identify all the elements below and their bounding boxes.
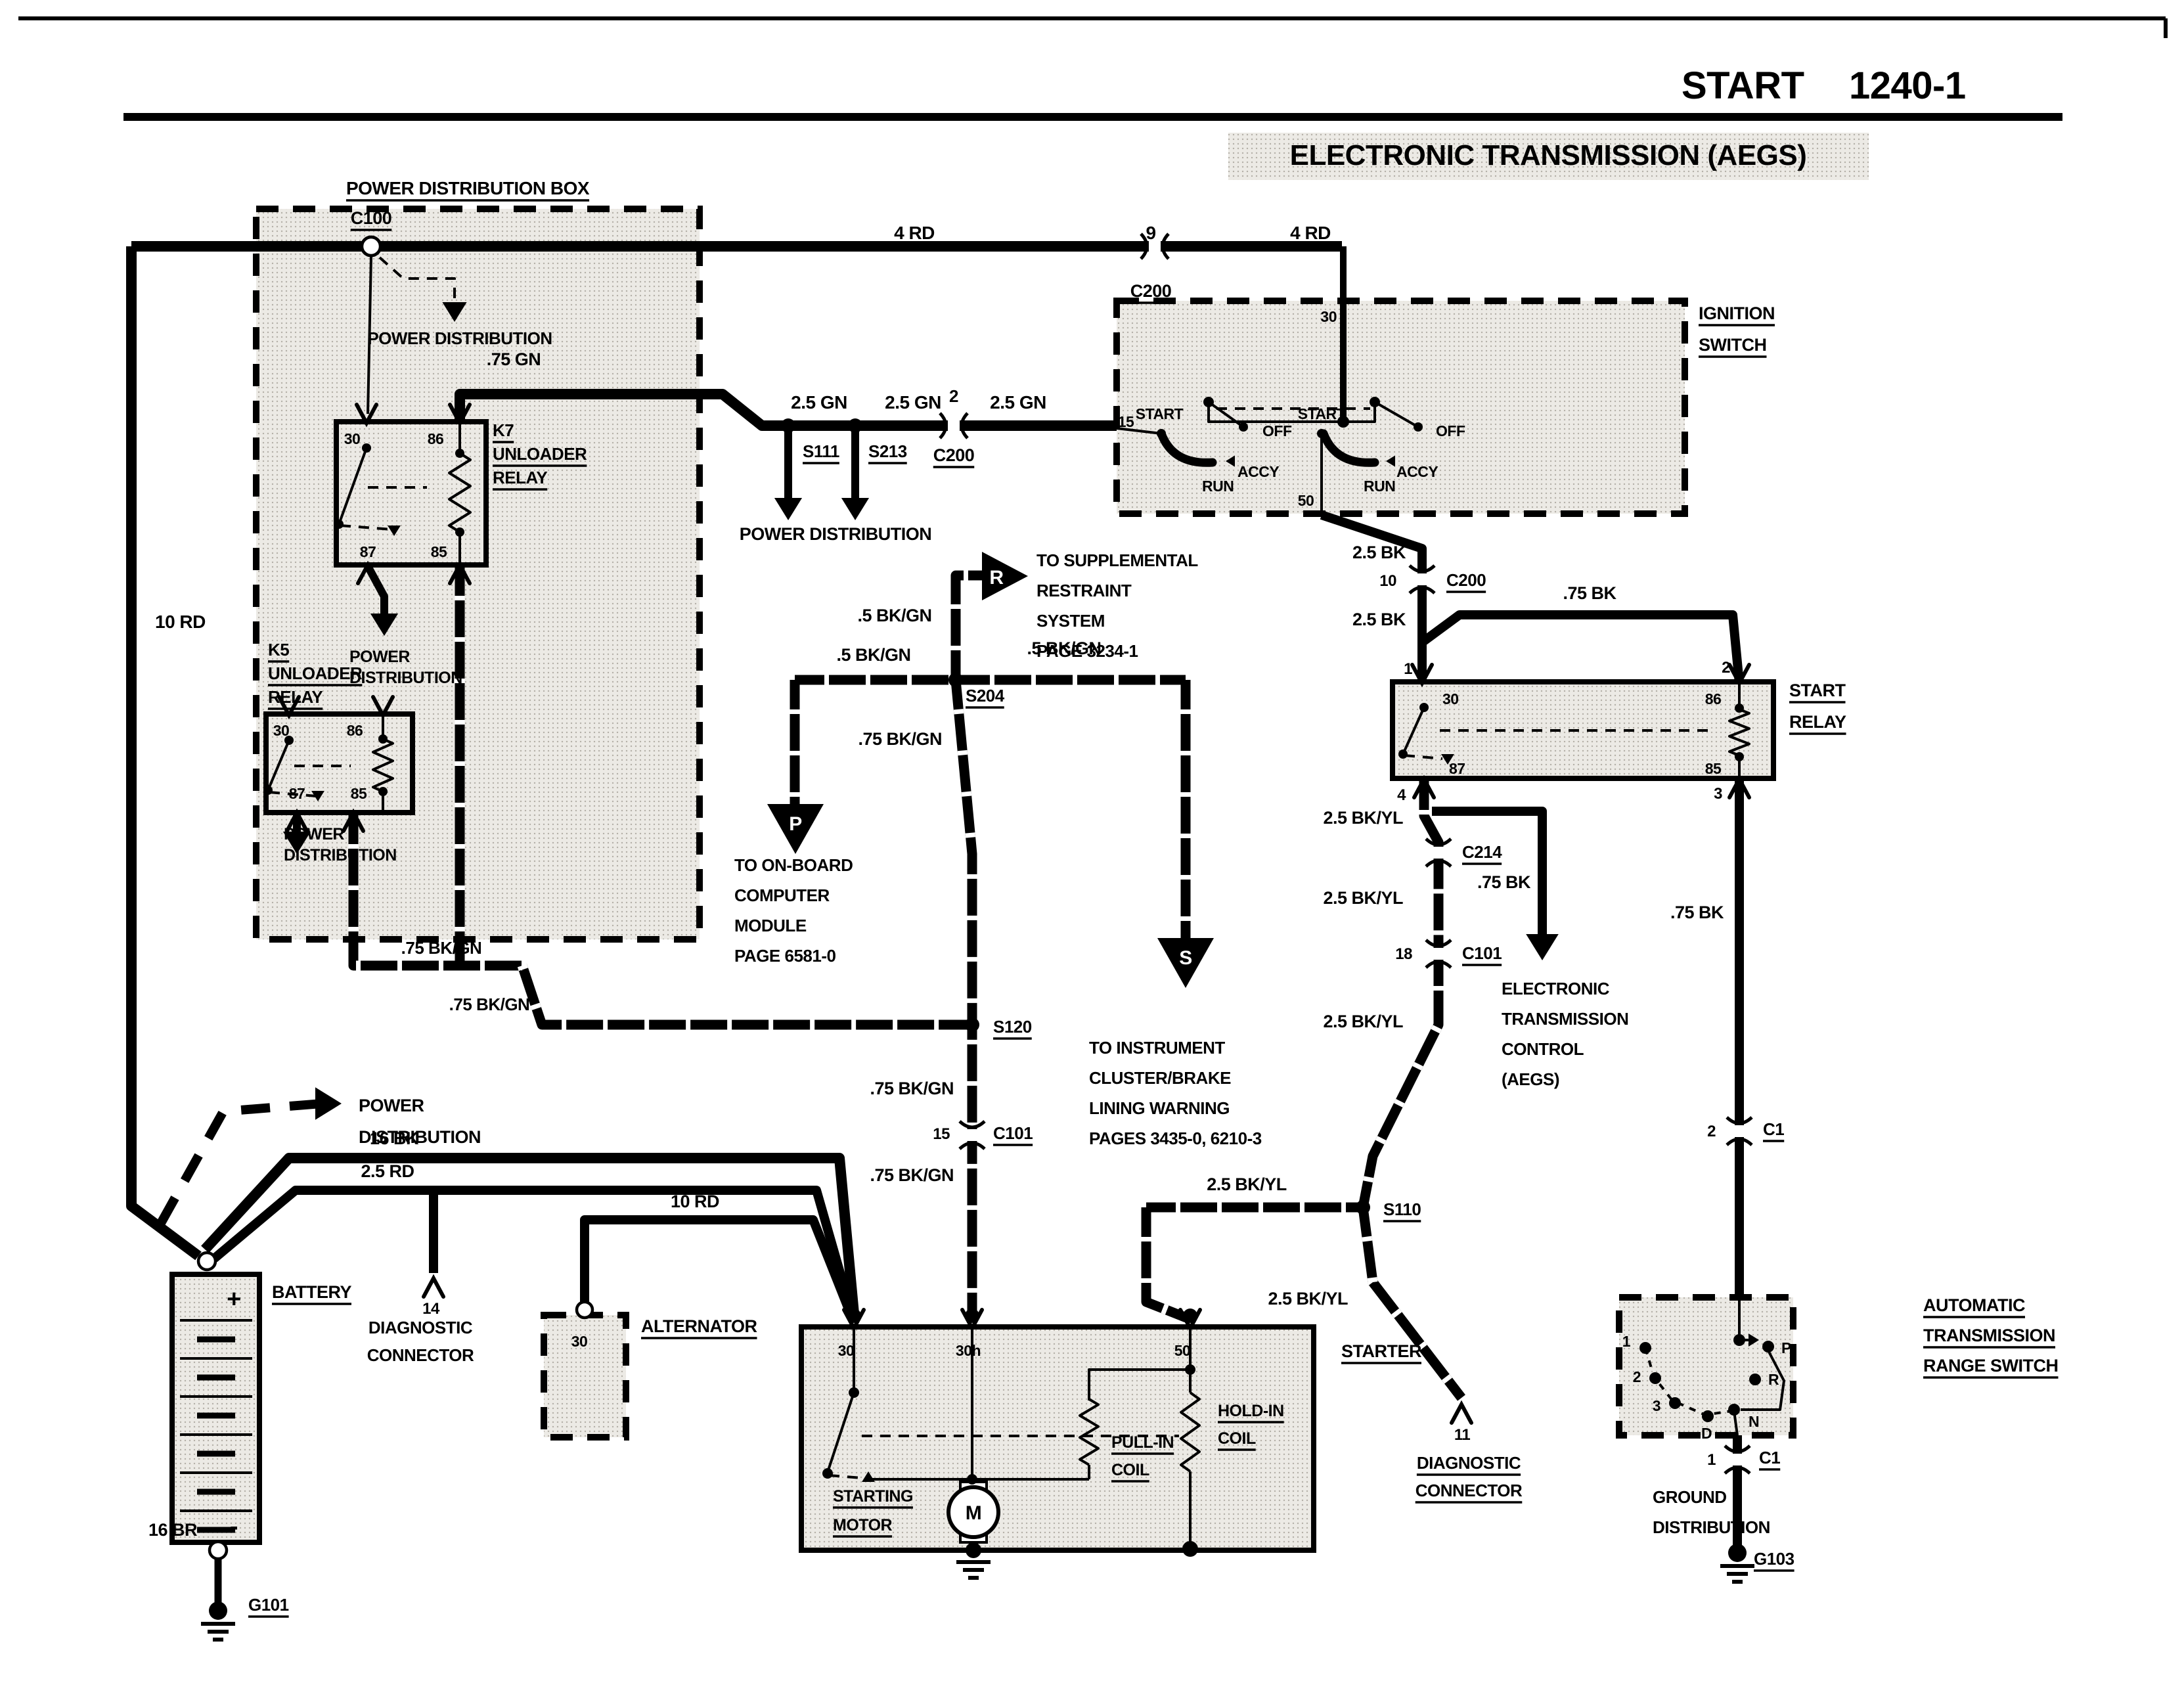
nav-arrow-letter-r: R — [989, 567, 1004, 589]
ign-off-left: OFF — [1262, 422, 1292, 439]
ign-accy-left: ACCY — [1237, 463, 1279, 480]
k5-name-2: UNLOADER — [268, 663, 363, 683]
junction-dot — [849, 1387, 859, 1398]
wire-25gn-c: 2.5 GN — [990, 392, 1046, 413]
junction-dot — [378, 787, 388, 796]
wire-hatch — [1363, 956, 1438, 1207]
diag14-1: DIAGNOSTIC — [368, 1318, 473, 1337]
diag14-2: CONNECTOR — [367, 1345, 474, 1365]
wire-25bkyl-c: 2.5 BK/YL — [1323, 1012, 1403, 1031]
junction-dot — [948, 673, 963, 687]
k5-pin86: 86 — [347, 722, 363, 739]
ign-accy-right: ACCY — [1396, 463, 1438, 480]
nav-arrow-letter-s: S — [1179, 947, 1192, 969]
s-dest-4: PAGES 3435-0, 6210-3 — [1089, 1129, 1262, 1148]
terminal-ring — [577, 1302, 592, 1318]
k7-pin30: 30 — [344, 430, 361, 447]
junction-dot — [1728, 1544, 1747, 1562]
k7-pin87: 87 — [360, 543, 376, 560]
start-relay-name-1: START — [1789, 681, 1846, 700]
rs-r: R — [1768, 1371, 1779, 1388]
junction-dot — [847, 1309, 861, 1323]
wire-75bkgn-d: .75 BK/GN — [870, 1079, 954, 1098]
c101-15-label: C101 — [993, 1123, 1033, 1143]
p-dest-3: MODULE — [734, 916, 807, 935]
junction-dot — [781, 418, 795, 433]
wire-25bkyl-a: 2.5 BK/YL — [1323, 808, 1403, 828]
junction-dot — [965, 1018, 979, 1032]
pd-arrow-1: POWER — [359, 1096, 424, 1115]
relay-pin4: 4 — [1397, 786, 1406, 804]
etc-dest-2: TRANSMISSION — [1502, 1009, 1628, 1029]
k5-name: K5 — [268, 640, 289, 660]
c200-10-label: C200 — [1446, 570, 1486, 590]
junction-dot — [1762, 1341, 1774, 1353]
battery-plus: + — [227, 1286, 241, 1313]
p-dest-4: PAGE 6581-0 — [734, 946, 836, 966]
connector-gap — [1732, 1125, 1747, 1137]
junction-dot — [1702, 1410, 1714, 1422]
rs-p: P — [1781, 1339, 1791, 1356]
wire-hatch — [1363, 1207, 1461, 1398]
terminal-ring — [198, 1253, 215, 1270]
page-title: START — [1682, 64, 1804, 107]
k7-name: K7 — [493, 420, 514, 440]
ground-dist-2: DISTRIBUTION — [1653, 1517, 1770, 1537]
c101-18-pin: 18 — [1395, 945, 1412, 963]
c200-2-pin: 2 — [949, 386, 958, 406]
wire-hatch — [956, 575, 984, 680]
wire-10rd-b: 10 RD — [671, 1192, 719, 1211]
junction-dot — [1728, 1404, 1740, 1416]
junction-dot — [1733, 1334, 1745, 1346]
relay-86: 86 — [1705, 690, 1722, 707]
diag11-pin: 11 — [1454, 1426, 1471, 1444]
c200-9-label: C200 — [1130, 281, 1172, 301]
k5-pin85: 85 — [351, 785, 367, 802]
battery-box — [172, 1274, 259, 1542]
wiring-diagram-page: START 1240-1 ELECTRONIC TRANSMISSION (AE… — [0, 0, 2184, 1697]
pin-fork — [424, 1278, 443, 1297]
wire-4rd-a: 4 RD — [894, 223, 935, 243]
pullin-coil-1: PULL-IN — [1111, 1433, 1174, 1452]
connector-gap — [1431, 847, 1446, 859]
s120-label: S120 — [993, 1017, 1032, 1037]
arrowhead — [774, 498, 802, 520]
c214-label: C214 — [1462, 842, 1502, 862]
arrowhead — [315, 1087, 342, 1120]
junction-dot — [1317, 429, 1326, 438]
k5-pin30: 30 — [273, 722, 290, 739]
starter-pin30h: 30h — [956, 1342, 981, 1359]
ignition-name-2: SWITCH — [1699, 335, 1766, 355]
k5-pd-1: POWER — [284, 825, 344, 843]
wire-75bkgn-a: .75 BK/GN — [401, 938, 482, 958]
wire-thick — [585, 1220, 853, 1319]
terminal-ring — [362, 237, 380, 256]
wire-hatch-ticks — [1363, 1207, 1461, 1398]
s-dest-2: CLUSTER/BRAKE — [1089, 1068, 1231, 1088]
ign-off-right: OFF — [1436, 422, 1465, 439]
pullin-coil-2: COIL — [1111, 1461, 1149, 1479]
junction-dot — [209, 1601, 227, 1620]
pd-arrow-2: DISTRIBUTION — [359, 1127, 481, 1147]
wire-75bkgn-c: .75 BK/GN — [858, 729, 942, 749]
wire-5bkgn-up: .5 BK/GN — [857, 606, 931, 625]
pdb-title: POWER DISTRIBUTION BOX — [346, 178, 590, 198]
rs-1: 1 — [1622, 1333, 1631, 1350]
junction-dot — [1414, 422, 1423, 432]
nav-arrow-letter-p: P — [789, 813, 802, 835]
wire-25gn-b: 2.5 GN — [885, 392, 941, 413]
r-dest-4: PAGE 3234-1 — [1036, 641, 1138, 661]
junction-dot — [1185, 1364, 1195, 1375]
etc-dest-4: (AEGS) — [1502, 1069, 1559, 1089]
connector-gap — [948, 418, 960, 433]
wire-25bkyl-b: 2.5 BK/YL — [1323, 888, 1403, 908]
c200-9-pin: 9 — [1146, 223, 1155, 243]
k7-pd-2: DISTRIBUTION — [349, 669, 462, 687]
ign-pin30: 30 — [1320, 308, 1337, 325]
junction-dot — [966, 1542, 981, 1558]
splice-power-distribution: POWER DISTRIBUTION — [740, 524, 932, 544]
junction-dot — [334, 520, 344, 529]
ign-run-left: RUN — [1202, 478, 1234, 495]
wire-10rd-left: 10 RD — [155, 612, 206, 632]
connector-gap — [965, 1129, 979, 1141]
s-dest-1: TO INSTRUMENT — [1089, 1038, 1225, 1058]
k7-pin86: 86 — [428, 430, 444, 447]
p-dest-2: COMPUTER — [734, 885, 830, 905]
rs-2: 2 — [1633, 1368, 1641, 1385]
wire-5bkgn-left: .5 BK/GN — [836, 645, 910, 665]
wire-thick — [131, 246, 198, 1256]
starter-pin30: 30 — [838, 1342, 855, 1359]
ign-start-left: START — [1136, 405, 1184, 422]
s-dest-3: LINING WARNING — [1089, 1098, 1230, 1118]
connector-gap — [1415, 573, 1429, 585]
s213-label: S213 — [868, 441, 907, 461]
diag11-2: CONNECTOR — [1415, 1481, 1523, 1500]
wire-75gn: .75 GN — [487, 349, 541, 369]
wire-25bkyl-e: 2.5 BK/YL — [1268, 1289, 1348, 1309]
ign-start-right: START — [1298, 405, 1346, 422]
k7-name-2: UNLOADER — [493, 444, 587, 464]
ign-pin50: 50 — [1298, 492, 1314, 509]
r-dest-3: SYSTEM — [1036, 611, 1105, 631]
junction-dot — [1649, 1372, 1661, 1384]
junction-dot — [1239, 422, 1248, 432]
k7-name-3: RELAY — [493, 468, 547, 487]
holdin-coil-1: HOLD-IN — [1218, 1402, 1284, 1420]
rs-n: N — [1749, 1413, 1759, 1430]
starter-pin50: 50 — [1174, 1342, 1191, 1359]
alt-pin30: 30 — [571, 1333, 588, 1350]
starting-motor-1: STARTING — [833, 1487, 913, 1506]
rs-d: D — [1701, 1425, 1712, 1442]
k7-pin85: 85 — [431, 543, 447, 560]
relay-pin1: 1 — [1404, 660, 1412, 678]
wire-hatch — [956, 680, 972, 1314]
c101-15-pin: 15 — [933, 1125, 950, 1143]
junction-dot — [263, 786, 273, 795]
relay-30: 30 — [1442, 690, 1459, 707]
diag14-pin: 14 — [422, 1300, 440, 1318]
diag11-1: DIAGNOSTIC — [1417, 1453, 1521, 1473]
wire-25bkyl-d: 2.5 BK/YL — [1207, 1174, 1287, 1194]
junction-dot — [967, 1474, 977, 1485]
wire-25bk-b: 2.5 BK — [1352, 610, 1406, 629]
c1-2-pin: 2 — [1707, 1123, 1716, 1140]
motor-m: M — [966, 1502, 982, 1524]
junction-dot — [1639, 1342, 1651, 1354]
c200-2-label: C200 — [933, 445, 975, 465]
ign-run-right: RUN — [1364, 478, 1395, 495]
terminal-ring — [210, 1542, 227, 1559]
relay-87: 87 — [1449, 760, 1465, 777]
junction-dot — [848, 418, 862, 433]
k5-name-3: RELAY — [268, 687, 323, 707]
junction-dot — [1183, 1309, 1197, 1323]
subtitle: ELECTRONIC TRANSMISSION (AEGS) — [1290, 139, 1807, 171]
junction-dot — [1157, 429, 1166, 438]
wire-25gn-a: 2.5 GN — [791, 392, 847, 413]
range-name-3: RANGE SWITCH — [1923, 1356, 2059, 1376]
g103-label: G103 — [1754, 1549, 1794, 1569]
battery-minus: - — [230, 1513, 238, 1540]
ground-dist-1: GROUND — [1653, 1487, 1727, 1507]
k5-pin87: 87 — [289, 785, 305, 802]
wire-75bkgn-e: .75 BK/GN — [870, 1165, 954, 1185]
ignition-name-1: IGNITION — [1699, 303, 1775, 323]
junction-dot — [1419, 703, 1429, 712]
junction-dot — [362, 443, 371, 453]
pdb-power-distribution: POWER DISTRIBUTION — [367, 328, 552, 348]
wire-25bk-a: 2.5 BK — [1352, 543, 1406, 562]
connector-gap — [1431, 948, 1446, 960]
rs-3: 3 — [1653, 1397, 1660, 1414]
wiring-diagram: RPSSTART1240-1ELECTRONIC TRANSMISSION (A… — [0, 0, 2184, 1697]
p-dest-1: TO ON-BOARD — [734, 855, 853, 875]
starting-motor-2: MOTOR — [833, 1516, 893, 1534]
relay-85: 85 — [1705, 760, 1722, 777]
c100-label: C100 — [351, 208, 392, 228]
c101-18-label: C101 — [1462, 943, 1502, 963]
starter-label: STARTER — [1341, 1341, 1421, 1361]
junction-dot — [378, 734, 388, 744]
junction-dot — [1370, 397, 1380, 407]
s204-label: S204 — [966, 686, 1005, 705]
wire-16br: 16 BR — [148, 1520, 197, 1540]
etc-dest-3: CONTROL — [1502, 1039, 1584, 1059]
arrowhead — [841, 498, 869, 520]
r-dest-1: TO SUPPLEMENTAL — [1036, 550, 1198, 570]
k5-pd-2: DISTRIBUTION — [284, 846, 397, 864]
junction-dot — [1735, 752, 1744, 761]
range-name-2: TRANSMISSION — [1923, 1326, 2055, 1345]
junction-dot — [1398, 749, 1408, 759]
junction-dot — [455, 527, 464, 537]
wire-75bkgn-b: .75 BK/GN — [449, 995, 530, 1014]
s111-label: S111 — [803, 441, 839, 461]
wire-hatch — [1146, 1207, 1186, 1318]
arrowhead — [1526, 934, 1559, 960]
wire-75bk-a: .75 BK — [1563, 583, 1616, 603]
c1-1-pin: 1 — [1707, 1451, 1716, 1469]
junction-dot — [1203, 397, 1214, 407]
etc-dest-1: ELECTRONIC — [1502, 979, 1610, 998]
start-relay-name-2: RELAY — [1789, 712, 1846, 732]
g101-label: G101 — [248, 1595, 289, 1615]
junction-dot — [1735, 704, 1744, 713]
wire-75bk-b: .75 BK — [1477, 872, 1531, 892]
junction-dot — [1669, 1397, 1681, 1409]
battery-label: BATTERY — [272, 1282, 351, 1302]
junction-dot — [1182, 1541, 1198, 1557]
page-code: 1240-1 — [1849, 64, 1966, 107]
c200-10-pin: 10 — [1379, 572, 1396, 590]
wire-25rd: 2.5 RD — [361, 1161, 414, 1181]
wire-thick — [1422, 615, 1739, 683]
wire-4rd-b: 4 RD — [1290, 223, 1331, 243]
junction-dot — [1749, 1374, 1761, 1385]
holdin-coil-2: COIL — [1218, 1429, 1256, 1448]
pin-fork — [1452, 1404, 1471, 1423]
alternator-label: ALTERNATOR — [641, 1316, 757, 1336]
c1-2-label: C1 — [1763, 1119, 1784, 1139]
range-name-1: AUTOMATIC — [1923, 1295, 2025, 1315]
connector-gap — [1730, 1454, 1745, 1465]
junction-dot — [822, 1468, 833, 1479]
c1-1-label: C1 — [1759, 1448, 1780, 1467]
relay-pin3: 3 — [1714, 785, 1722, 803]
wire-75bk-c: .75 BK — [1670, 903, 1724, 922]
relay-pin2: 2 — [1722, 659, 1730, 677]
junction-dot — [965, 1309, 979, 1323]
ign-pin15: 15 — [1118, 413, 1134, 430]
s110-label: S110 — [1383, 1199, 1421, 1219]
junction-dot — [1356, 1200, 1370, 1215]
junction-dot — [455, 449, 464, 458]
r-dest-2: RESTRAINT — [1036, 581, 1132, 600]
